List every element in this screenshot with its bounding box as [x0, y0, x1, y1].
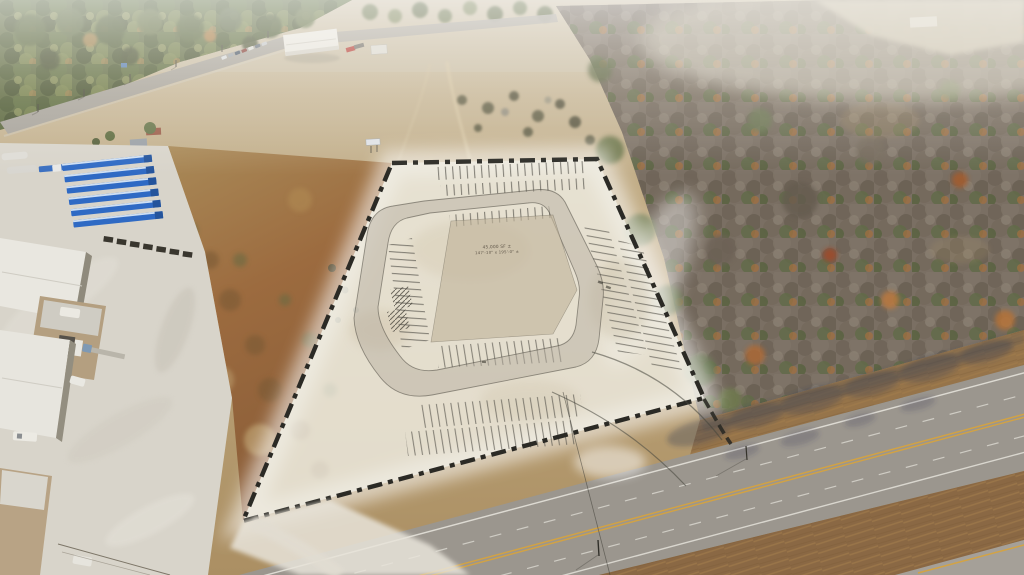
aerial-drone-photo: 45,000 SF ± 147'-10" x 195'-0" ±	[0, 0, 1024, 575]
texture-shape	[219, 289, 241, 311]
entrance-bright-patch	[574, 446, 646, 478]
power-pole	[598, 540, 599, 556]
texture-shape	[995, 310, 1015, 330]
texture-shape	[482, 361, 486, 363]
texture-shape	[930, 236, 990, 264]
texture-shape	[17, 433, 22, 438]
texture-shape	[782, 182, 818, 218]
texture-shape	[745, 345, 765, 365]
texture-shape	[279, 294, 291, 306]
texture-shape	[718, 388, 742, 412]
trailer-end	[152, 200, 161, 208]
trailer-end	[155, 211, 164, 219]
texture-shape	[245, 335, 265, 355]
texture-shape	[0, 470, 48, 510]
aerial-photo-stage: 45,000 SF ± 147'-10" x 195'-0" ±	[0, 0, 1024, 575]
texture-shape	[233, 253, 247, 267]
texture-shape	[823, 248, 837, 262]
texture-shape	[13, 431, 38, 442]
building-pad	[431, 215, 577, 342]
texture-shape	[705, 235, 735, 265]
trailer-end	[148, 177, 157, 185]
trailer-end	[150, 188, 159, 196]
texture-shape	[258, 378, 282, 402]
texture-shape	[881, 291, 899, 309]
texture-shape	[288, 188, 312, 212]
white-pickup	[13, 431, 38, 442]
